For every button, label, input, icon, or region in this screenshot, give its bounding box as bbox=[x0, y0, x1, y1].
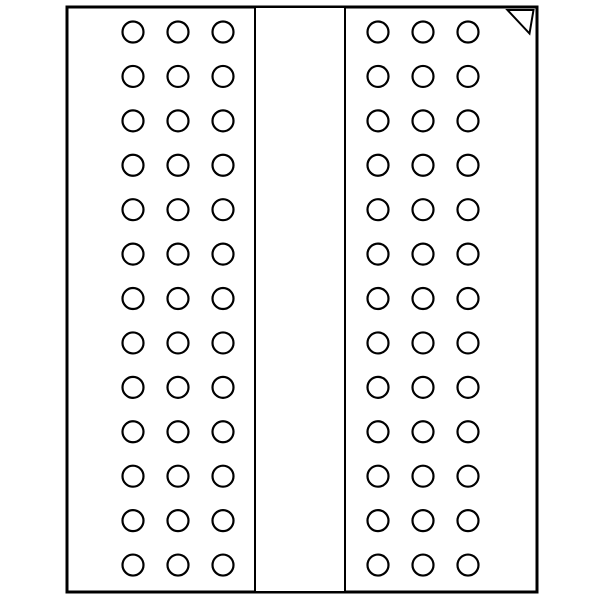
ball bbox=[213, 155, 234, 176]
ball bbox=[368, 555, 389, 576]
ball bbox=[168, 244, 189, 265]
ball bbox=[168, 22, 189, 43]
ball bbox=[368, 199, 389, 220]
ball bbox=[413, 377, 434, 398]
ball bbox=[123, 421, 144, 442]
ball bbox=[168, 332, 189, 353]
ball bbox=[368, 466, 389, 487]
ball bbox=[413, 288, 434, 309]
ball bbox=[213, 199, 234, 220]
ball bbox=[368, 22, 389, 43]
ball bbox=[123, 110, 144, 131]
center-channel bbox=[255, 7, 345, 592]
ball bbox=[413, 555, 434, 576]
ball bbox=[458, 332, 479, 353]
ball bbox=[368, 332, 389, 353]
ball bbox=[458, 288, 479, 309]
ball bbox=[123, 22, 144, 43]
ball bbox=[168, 110, 189, 131]
bga-package-svg bbox=[0, 0, 600, 600]
ball bbox=[123, 66, 144, 87]
ball bbox=[213, 288, 234, 309]
ball bbox=[368, 66, 389, 87]
ball bbox=[168, 288, 189, 309]
ball bbox=[413, 155, 434, 176]
ball bbox=[413, 110, 434, 131]
ball bbox=[368, 288, 389, 309]
ball bbox=[123, 510, 144, 531]
ball bbox=[168, 421, 189, 442]
ball bbox=[413, 66, 434, 87]
ball bbox=[123, 555, 144, 576]
ball bbox=[123, 332, 144, 353]
ball bbox=[213, 66, 234, 87]
ball bbox=[213, 510, 234, 531]
ball bbox=[458, 555, 479, 576]
ball bbox=[458, 110, 479, 131]
ball bbox=[413, 466, 434, 487]
ball bbox=[123, 377, 144, 398]
ball bbox=[168, 555, 189, 576]
ball bbox=[213, 244, 234, 265]
ball bbox=[458, 199, 479, 220]
ball bbox=[458, 377, 479, 398]
ball bbox=[458, 66, 479, 87]
ball bbox=[368, 377, 389, 398]
ball bbox=[213, 466, 234, 487]
ball bbox=[213, 22, 234, 43]
ball bbox=[413, 244, 434, 265]
ball bbox=[168, 510, 189, 531]
ball bbox=[458, 466, 479, 487]
ball bbox=[413, 332, 434, 353]
bga-package-diagram bbox=[0, 0, 600, 600]
ball bbox=[368, 155, 389, 176]
ball bbox=[168, 199, 189, 220]
ball bbox=[123, 244, 144, 265]
ball bbox=[123, 288, 144, 309]
ball bbox=[458, 155, 479, 176]
ball bbox=[213, 421, 234, 442]
ball bbox=[168, 155, 189, 176]
ball bbox=[168, 466, 189, 487]
ball bbox=[213, 377, 234, 398]
ball bbox=[413, 510, 434, 531]
ball bbox=[123, 466, 144, 487]
ball bbox=[368, 244, 389, 265]
ball bbox=[123, 155, 144, 176]
ball bbox=[168, 377, 189, 398]
ball bbox=[368, 421, 389, 442]
ball bbox=[458, 244, 479, 265]
ball bbox=[413, 421, 434, 442]
ball bbox=[413, 199, 434, 220]
ball bbox=[368, 110, 389, 131]
ball bbox=[213, 110, 234, 131]
ball bbox=[213, 332, 234, 353]
ball bbox=[458, 510, 479, 531]
ball bbox=[413, 22, 434, 43]
ball bbox=[213, 555, 234, 576]
ball bbox=[458, 421, 479, 442]
ball bbox=[168, 66, 189, 87]
ball bbox=[368, 510, 389, 531]
ball bbox=[458, 22, 479, 43]
ball bbox=[123, 199, 144, 220]
